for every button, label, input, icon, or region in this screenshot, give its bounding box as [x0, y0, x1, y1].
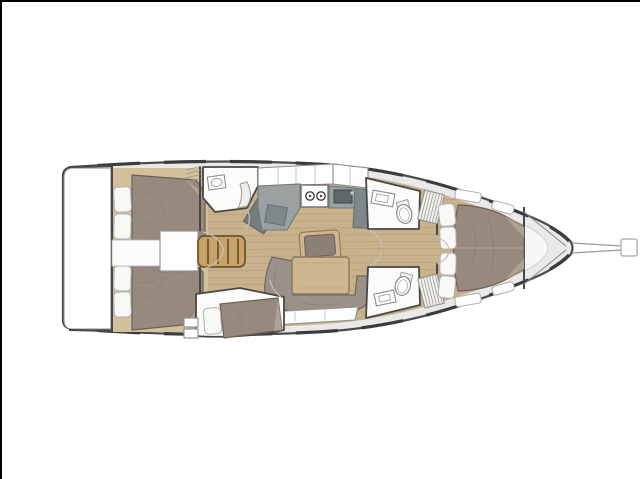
stove-two-burners: [301, 185, 328, 207]
bowsprit: [572, 239, 637, 256]
pillow: [438, 275, 456, 299]
salon-table: [292, 257, 349, 294]
floorplan-image: [0, 0, 640, 479]
bow-fitting: [621, 239, 637, 256]
pillow: [114, 292, 132, 318]
pillow: [440, 253, 457, 276]
pillow: [114, 214, 132, 240]
pillow: [438, 203, 456, 227]
pillow: [114, 266, 132, 292]
galley-sink: [334, 190, 352, 203]
yacht-floorplan-svg: [0, 0, 640, 479]
engine-access-hatch: [160, 231, 198, 271]
washbasin: [207, 175, 226, 190]
transom-swim-platform: [64, 166, 112, 331]
pillow: [203, 307, 222, 334]
pillow: [113, 187, 131, 213]
